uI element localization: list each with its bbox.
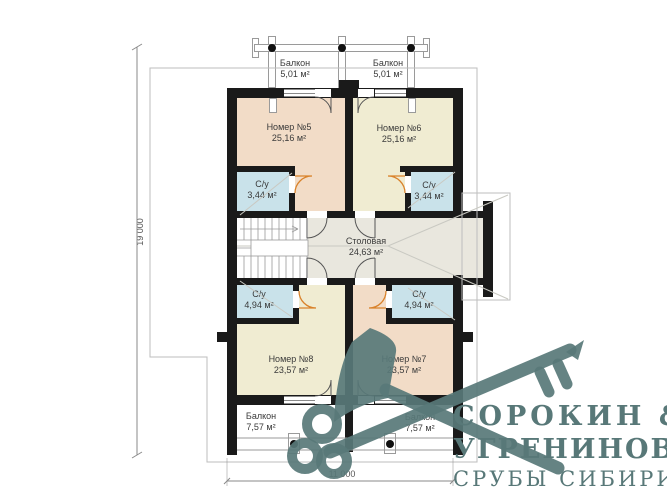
dimension-horizontal: 11 000 — [320, 469, 364, 479]
floor-plan: Номер №5 25,16 м² Номер №6 25,16 м² С/у … — [0, 0, 667, 502]
room-area: 4,94 м² — [404, 300, 433, 311]
room-label-room5: Номер №5 25,16 м² — [267, 122, 312, 144]
room-area: 7,57 м² — [405, 423, 435, 434]
stairwell-fill — [237, 218, 308, 278]
room-label-room6: Номер №6 25,16 м² — [377, 123, 422, 145]
door-opening — [315, 396, 331, 404]
room-name: Номер №6 — [377, 123, 422, 134]
wall-right-upper — [453, 88, 463, 214]
room-area: 23,57 м² — [382, 365, 427, 376]
room-name: Балкон — [405, 412, 435, 423]
room-name: Номер №5 — [267, 122, 312, 133]
dimension-vertical: 19 000 — [135, 212, 145, 252]
wall-divider-rooms78 — [345, 278, 353, 405]
room-name: Балкон — [246, 411, 276, 422]
room-area: 7,57 м² — [246, 422, 276, 433]
room-label-room8: Номер №8 23,57 м² — [269, 354, 314, 376]
window — [375, 89, 406, 97]
window — [284, 89, 315, 97]
room-label-wc-top-right: С/у 3,44 м² — [414, 180, 443, 202]
room-name: Балкон — [280, 58, 310, 69]
door-opening — [386, 291, 392, 308]
log-joint-stub — [217, 332, 227, 342]
door-opening — [355, 211, 375, 218]
room-label-balcony-bottom-right: Балкон 7,57 м² — [405, 412, 435, 434]
room-area: 5,01 м² — [280, 69, 310, 80]
balcony-beam — [254, 44, 428, 52]
door-opening — [355, 278, 375, 285]
wall-wc-br-bottom — [392, 318, 463, 324]
door-opening — [289, 176, 295, 193]
wall-bay-right — [483, 201, 493, 297]
room-name: Балкон — [373, 58, 403, 69]
room-label-room7: Номер №7 23,57 м² — [382, 354, 427, 376]
room-area: 25,16 м² — [267, 133, 312, 144]
logo-text-line2: УГРЕНИНОВ — [453, 434, 667, 465]
room-name: Номер №7 — [382, 354, 427, 365]
wall-balcony-divider — [345, 405, 353, 452]
window — [375, 396, 406, 404]
room-name: Столовая — [346, 236, 386, 247]
log-joint-stub — [463, 332, 473, 342]
wall-wc-tl-top — [227, 166, 295, 172]
room-label-dining: Столовая 24,63 м² — [346, 236, 386, 258]
room-area: 3,44 м² — [247, 190, 276, 201]
room-area: 25,16 м² — [377, 134, 422, 145]
door-opening — [307, 211, 327, 218]
room5-post — [269, 98, 277, 113]
room-area: 3,44 м² — [414, 191, 443, 202]
room-name: С/у — [404, 289, 433, 300]
wall-left — [227, 88, 237, 455]
log-joint-stub — [339, 80, 359, 88]
wall-divider-rooms56 — [345, 88, 353, 218]
door-opening — [405, 176, 411, 193]
logo-text-line1: СОРОКИН & — [453, 401, 667, 432]
room-label-wc-bottom-left: С/у 4,94 м² — [244, 289, 273, 311]
room-name: С/у — [414, 180, 443, 191]
door-opening — [293, 291, 299, 308]
room-name: С/у — [244, 289, 273, 300]
window — [284, 396, 315, 404]
balcony-post-bottom — [384, 433, 396, 454]
balcony-post-bottom — [288, 433, 300, 454]
door-opening — [315, 89, 331, 97]
room-name: Номер №8 — [269, 354, 314, 365]
room-area: 23,57 м² — [269, 365, 314, 376]
room-name: С/у — [247, 179, 276, 190]
room-area: 4,94 м² — [244, 300, 273, 311]
room-label-balcony-bottom-left: Балкон 7,57 м² — [246, 411, 276, 433]
door-opening — [358, 89, 374, 97]
room-label-wc-bottom-right: С/у 4,94 м² — [404, 289, 433, 311]
room6-post — [408, 98, 416, 113]
door-opening — [358, 396, 374, 404]
room-area: 5,01 м² — [373, 69, 403, 80]
room-area: 24,63 м² — [346, 247, 386, 258]
room-label-balcony-top-right: Балкон 5,01 м² — [373, 58, 403, 80]
room-label-balcony-top-left: Балкон 5,01 м² — [280, 58, 310, 80]
wall-wc-bl-bottom — [227, 318, 293, 324]
room-label-wc-top-left: С/у 3,44 м² — [247, 179, 276, 201]
logo-text-line3: СРУБЫ СИБИРИ — [453, 467, 667, 491]
door-opening — [307, 278, 327, 285]
